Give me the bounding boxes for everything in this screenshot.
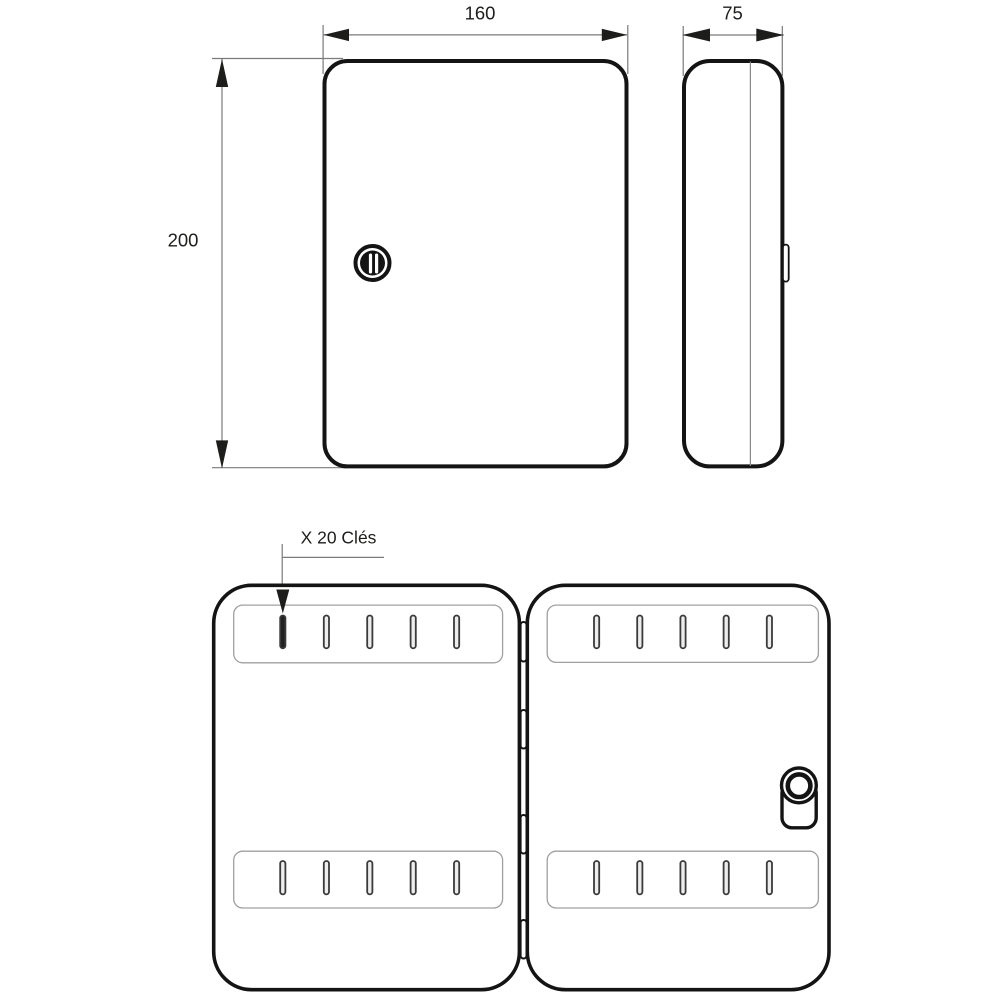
svg-text:160: 160 [465, 3, 496, 24]
svg-text:200: 200 [168, 230, 199, 251]
svg-text:X 20 Clés: X 20 Clés [301, 528, 377, 548]
svg-text:75: 75 [722, 3, 743, 24]
